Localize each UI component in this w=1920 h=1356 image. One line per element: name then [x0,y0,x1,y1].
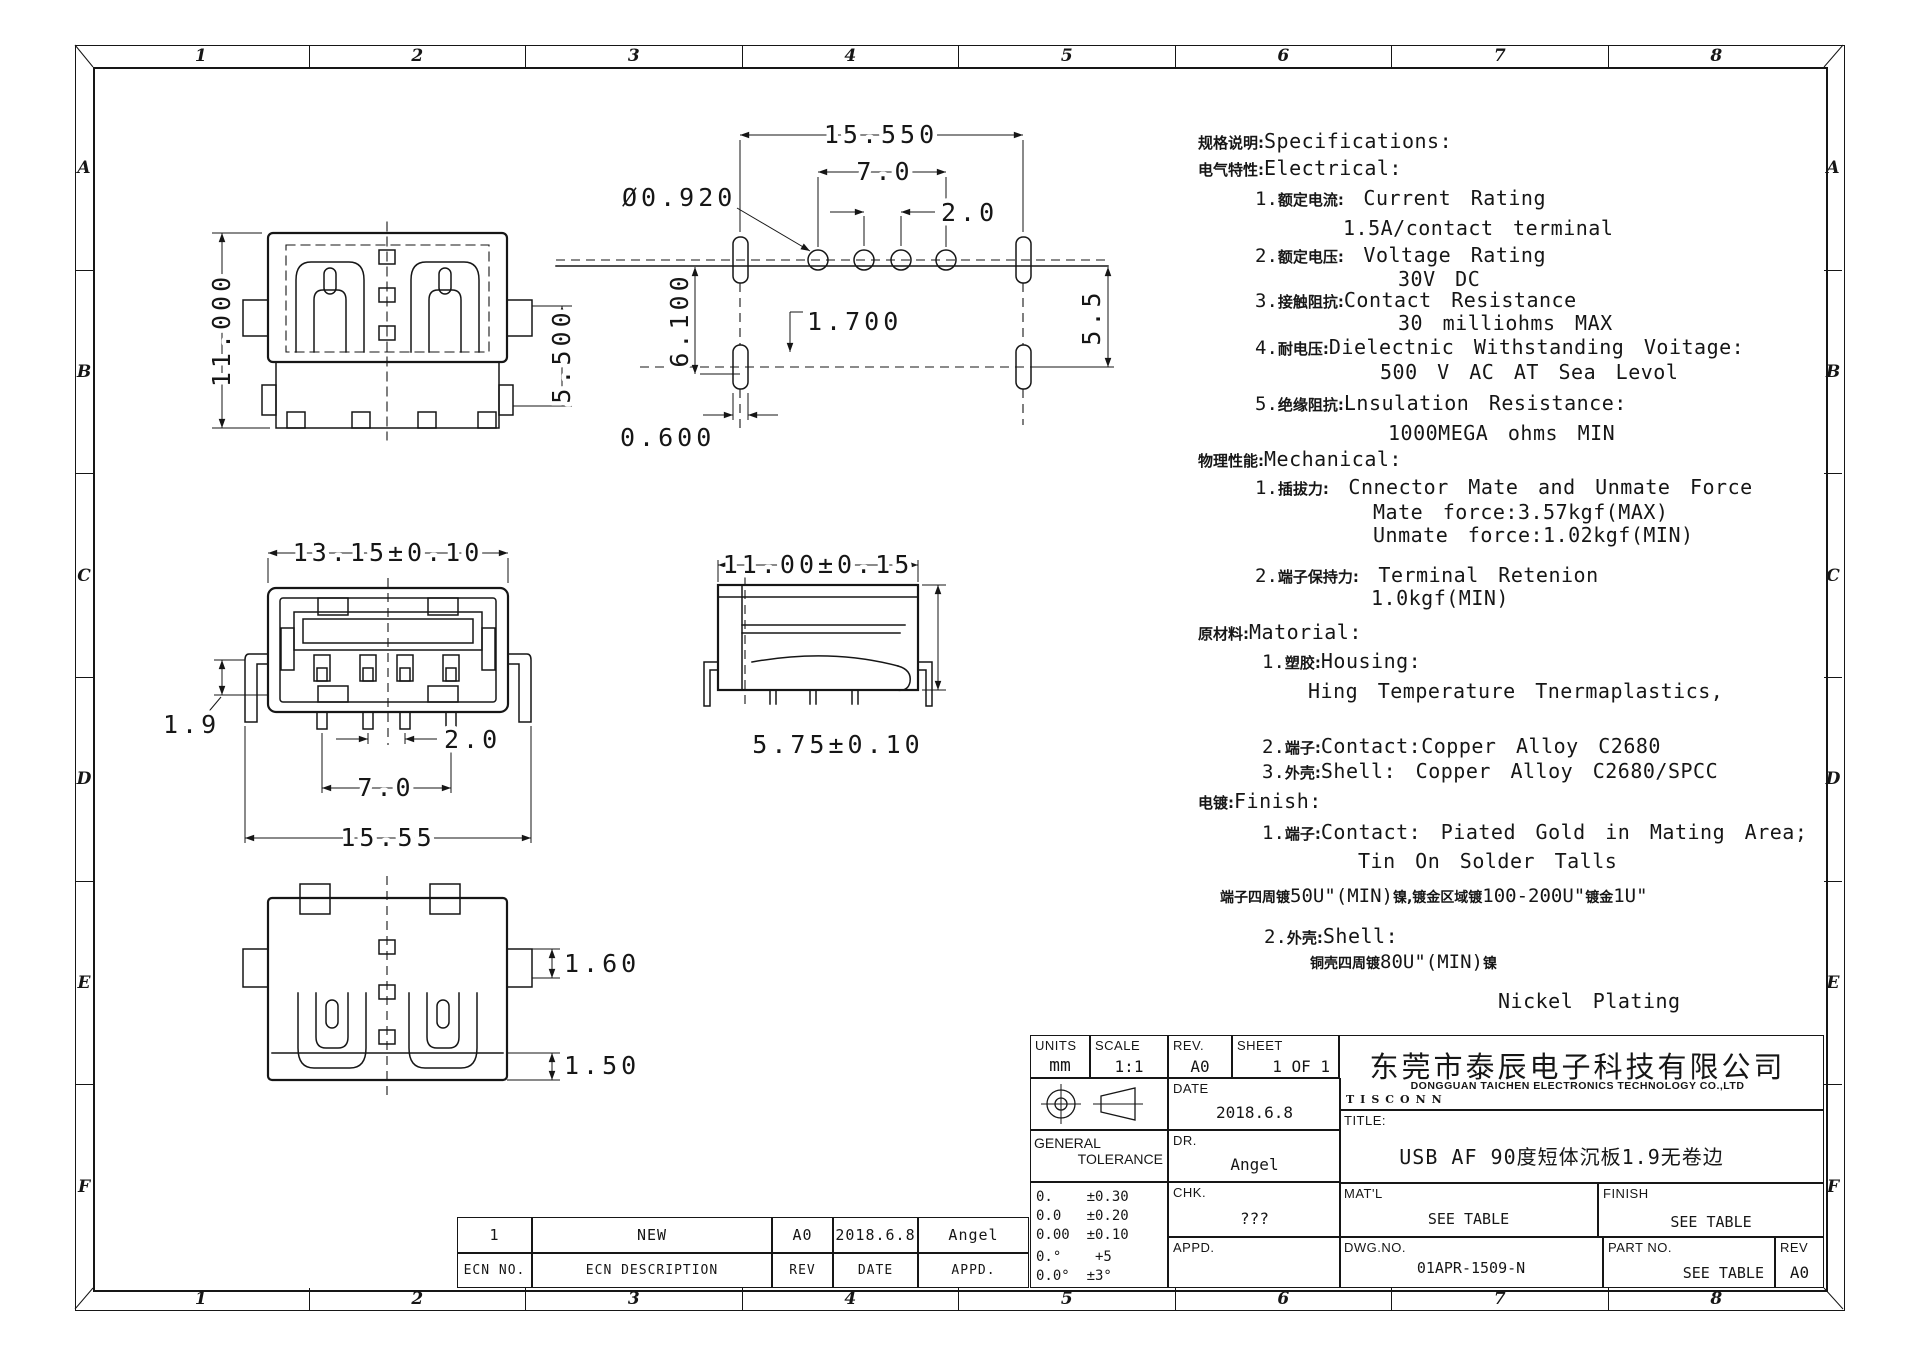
dr-label: DR. [1173,1133,1197,1148]
spec-cn: 外壳: [1287,929,1323,947]
dim-label: 5.500 [547,308,576,403]
spec-line: 原材料:Matorial: [1198,620,1362,650]
dwg-no-value: 01APR-1509-N [1340,1259,1602,1277]
matl-label: MAT'L [1344,1186,1383,1201]
spec-en: 30 milliohms MAX [1398,311,1613,335]
sheet-value: 1 OF 1 [1233,1057,1330,1076]
drawing-title: USB AF 90度短体沉板1.9无卷边 [1340,1141,1783,1170]
rev-bottom-label: REV [1780,1240,1808,1255]
dr-cell: DR. Angel [1168,1130,1341,1182]
spec-line-plating-shell: 铜壳四周镀80U"(MIN)镍 [1310,949,1497,979]
spec-line-plating-contact: 端子四周镀50U"(MIN)镍,镀金区域镀100-200U"镀金1U" [1220,883,1648,913]
spec-line: 1000MEGA ohms MIN [1388,421,1615,451]
spec-en: Matorial: [1249,620,1362,644]
spec-line: Nickel Plating [1498,989,1681,1019]
ecn-date: 2018.6.8 [833,1217,918,1253]
spec-en: Shell: [1323,924,1398,948]
spec-cn: 端子保持力: [1278,568,1359,586]
matl-value: SEE TABLE [1340,1210,1597,1228]
dim-label: 15.550 [824,120,938,149]
spec-num: 3. [1262,761,1285,783]
spec-line: 1.端子:Contact: Piated Gold in Mating Area… [1262,820,1807,850]
spec-en: Contact: Piated Gold in Mating Area; [1321,820,1807,844]
title-label: TITLE: [1344,1113,1386,1128]
rev-bottom-cell: REV A0 [1775,1237,1824,1288]
general-label: GENERAL [1031,1131,1167,1151]
spec-line: 1.5A/contact terminal [1343,216,1613,246]
dim-label: Ø0.920 [622,183,736,212]
spec-num: 3. [1255,290,1278,312]
spec-en: 80U"(MIN) [1380,951,1483,973]
part-no-value: SEE TABLE [1604,1264,1764,1282]
spec-en: Unmate force:1.02kgf(MIN) [1373,523,1694,547]
spec-en: Voltage Rating [1344,243,1546,267]
spec-en: Lnsulation Resistance: [1344,391,1627,415]
appd-label: APPD. [1173,1240,1215,1255]
dim-label: 11.00±0.15 [723,550,914,579]
view-top-plan: 11.000 5.500 [207,222,576,440]
spec-en: Specifications: [1264,129,1452,153]
spec-en: 50U"(MIN) [1290,885,1393,907]
dim-label: 1.50 [564,1051,640,1080]
cad-drawing-sheet: { "zones": { "cols": ["1","2","3","4","5… [0,0,1920,1356]
spec-line: 5.绝缘阻抗:Lnsulation Resistance: [1255,391,1627,421]
spec-line: Hing Temperature Tnermaplastics, [1308,679,1723,709]
dwg-no-cell: DWG.NO. 01APR-1509-N [1339,1237,1603,1288]
spec-line: 3.外壳:Shell: Copper Alloy C2680/SPCC [1262,759,1718,789]
spec-num: 5. [1255,393,1278,415]
spec-cn: 端子: [1285,825,1321,843]
dim-label: 2.0 [444,725,501,754]
dim-label: 1.700 [807,307,902,336]
matl-cell: MAT'L SEE TABLE [1339,1183,1598,1237]
spec-en: 1000MEGA ohms MIN [1388,421,1615,445]
spec-line: Tin On Solder Talls [1358,849,1617,879]
spec-line: 1.塑胶:Housing: [1262,649,1421,679]
scale-cell: SCALE 1:1 [1090,1035,1168,1078]
finish-value: SEE TABLE [1599,1213,1823,1231]
spec-en: 1.5A/contact terminal [1343,216,1613,240]
spec-cn: 镀金 [1585,890,1613,906]
finish-cell: FINISH SEE TABLE [1598,1183,1824,1237]
spec-en: Current Rating [1344,186,1546,210]
tolerance-line: 0.0 ±0.20 [1031,1207,1167,1226]
tolerance-line: 0.0° ±3° [1031,1267,1167,1286]
finish-label: FINISH [1603,1186,1649,1201]
company-name-en: DONGGUAN TAICHEN ELECTRONICS TECHNOLOGY … [1340,1080,1815,1092]
spec-cn: 耐电压: [1278,340,1329,358]
tisconn-logo: TISCONN [1346,1093,1448,1106]
part-no-label: PART NO. [1608,1240,1672,1255]
spec-num: 1. [1262,651,1285,673]
spec-num: 1. [1255,477,1278,499]
rev-value: A0 [1169,1057,1231,1076]
date-value: 2018.6.8 [1169,1103,1340,1122]
spec-num: 1. [1262,822,1285,844]
spec-en: Tin On Solder Talls [1358,849,1617,873]
spec-en: Housing: [1321,649,1421,673]
ecn-header-description: ECN DESCRIPTION [532,1253,772,1288]
view-side-section: 11.00±0.15 5.75±0.10 [704,550,946,759]
spec-cn: 电气特性: [1198,161,1264,179]
dim-label: 0.600 [620,423,715,452]
spec-num: 2. [1262,736,1285,758]
dim-label: 1.9 [163,710,220,739]
spec-en: Terminal Retenion [1359,563,1599,587]
spec-num: 1. [1255,188,1278,210]
spec-num: 2. [1255,245,1278,267]
spec-line: 电镀:Finish: [1198,789,1322,819]
ecn-header-appd: APPD. [918,1253,1029,1288]
dim-label: 6.100 [665,272,694,367]
view-pcb-footprint: 15.550 7.0 2.0 Ø0.920 6.100 1.700 0.600 … [556,120,1114,452]
ecn-header-date: DATE [833,1253,918,1288]
dim-label: 5.5 [1077,288,1106,345]
dim-label: 13.15±0.10 [293,538,484,567]
spec-line: 1.额定电流: Current Rating [1255,186,1546,216]
tolerance-line: 0.00 ±0.10 [1031,1226,1167,1245]
spec-cn: 插拔力: [1278,480,1329,498]
dr-value: Angel [1169,1155,1340,1174]
spec-cn: 镍 [1483,956,1497,972]
spec-line: 500 V AC AT Sea Levol [1380,360,1678,390]
spec-cn: 端子: [1285,739,1321,757]
rev-bottom-value: A0 [1776,1263,1823,1282]
spec-en: 1.0kgf(MIN) [1371,586,1509,610]
part-no-cell: PART NO. SEE TABLE [1603,1237,1775,1288]
units-value: mm [1031,1055,1089,1076]
dim-label: 11.000 [207,273,236,387]
tolerance-line: 0.° +5 [1031,1245,1167,1267]
tolerance-label: TOLERANCE [1031,1151,1167,1167]
spec-cn: 额定电压: [1278,248,1344,266]
title-cell: TITLE: USB AF 90度短体沉板1.9无卷边 [1339,1110,1824,1183]
ecn-table: 1 NEW A0 2018.6.8 Angel ECN NO. ECN DESC… [457,1217,1029,1288]
spec-en: Contact:Copper Alloy C2680 [1321,734,1661,758]
view-front-face: 13.15±0.10 1.9 2.0 7.0 15.55 [163,538,531,852]
view-bottom: 1.60 1.50 [243,876,640,1095]
scale-value: 1:1 [1091,1057,1167,1076]
units-cell: UNITS mm [1030,1035,1090,1078]
ecn-header-rev: REV [772,1253,833,1288]
spec-line: 物理性能:Mechanical: [1198,447,1402,477]
units-label: UNITS [1035,1038,1077,1053]
spec-en: Mechanical: [1264,447,1402,471]
title-block: UNITS mm SCALE 1:1 REV. A0 SHEET 1 OF 1 … [1030,1035,1824,1288]
date-label: DATE [1173,1081,1209,1096]
tolerance-line: 0. ±0.30 [1031,1183,1167,1207]
ecn-description: NEW [532,1217,772,1253]
spec-num: 4. [1255,337,1278,359]
dim-label: 7.0 [357,773,414,802]
spec-cn: 额定电流: [1278,191,1344,209]
spec-en: 500 V AC AT Sea Levol [1380,360,1678,384]
spec-cn: 镍,镀金区域镀 [1393,890,1482,906]
spec-cn: 原材料: [1198,625,1249,643]
appd-cell: APPD. [1168,1237,1341,1288]
ecn-header-no: ECN NO. [457,1253,532,1288]
spec-cn: 塑胶: [1285,654,1321,672]
spec-line: 1.0kgf(MIN) [1371,586,1509,616]
tolerance-values-cell: 0. ±0.30 0.0 ±0.20 0.00 ±0.10 0.° +5 0.0… [1030,1182,1168,1288]
date-cell: DATE 2018.6.8 [1168,1078,1341,1130]
spec-cn: 绝缘阻抗: [1278,396,1344,414]
chk-label: CHK. [1173,1185,1206,1200]
spec-en: Finish: [1234,789,1322,813]
third-angle-projection-icon [1031,1079,1166,1128]
dim-label: 7.0 [856,157,913,186]
spec-en: Electrical: [1264,156,1402,180]
spec-num: 2. [1255,565,1278,587]
rev-cell: REV. A0 [1168,1035,1232,1078]
spec-en: Nickel Plating [1498,989,1681,1013]
spec-line: 规格说明:Specifications: [1198,129,1452,159]
spec-en: 1U" [1613,885,1647,907]
scale-label: SCALE [1095,1038,1140,1053]
spec-cn: 端子四周镀 [1220,890,1290,906]
spec-en: Cnnector Mate and Unmate Force [1329,475,1753,499]
dim-label: 2.0 [941,198,998,227]
spec-en: Mate force:3.57kgf(MAX) [1373,500,1668,524]
dim-label: 5.75±0.10 [752,730,923,759]
general-tolerance-cell: GENERAL TOLERANCE [1030,1130,1168,1182]
spec-en: Contact Resistance [1344,288,1577,312]
spec-en: Dielectnic Withstanding Voitage: [1329,335,1744,359]
spec-cn: 电镀: [1198,794,1234,812]
spec-en: 100-200U" [1482,885,1585,907]
projection-cell [1030,1078,1168,1130]
spec-en: Shell: Copper Alloy C2680/SPCC [1321,759,1718,783]
spec-cn: 规格说明: [1198,134,1264,152]
company-cell: 东莞市泰辰电子科技有限公司 DONGGUAN TAICHEN ELECTRONI… [1339,1035,1824,1110]
spec-cn: 铜壳四周镀 [1310,956,1380,972]
sheet-label: SHEET [1237,1038,1283,1053]
rev-label: REV. [1173,1038,1204,1053]
chk-cell: CHK. ??? [1168,1182,1341,1237]
chk-value: ??? [1169,1209,1340,1228]
sheet-cell: SHEET 1 OF 1 [1232,1035,1339,1078]
dim-label: 1.60 [564,949,640,978]
ecn-rev: A0 [772,1217,833,1253]
spec-cn: 物理性能: [1198,452,1264,470]
spec-cn: 接触阻抗: [1278,293,1344,311]
spec-num: 2. [1264,926,1287,948]
dwg-no-label: DWG.NO. [1344,1240,1406,1255]
spec-line: Unmate force:1.02kgf(MIN) [1373,523,1694,553]
spec-line: 电气特性:Electrical: [1198,156,1402,186]
spec-en: Hing Temperature Tnermaplastics, [1308,679,1723,703]
ecn-appd: Angel [918,1217,1029,1253]
spec-cn: 外壳: [1285,764,1321,782]
dim-label: 15.55 [340,823,435,852]
ecn-no: 1 [457,1217,532,1253]
